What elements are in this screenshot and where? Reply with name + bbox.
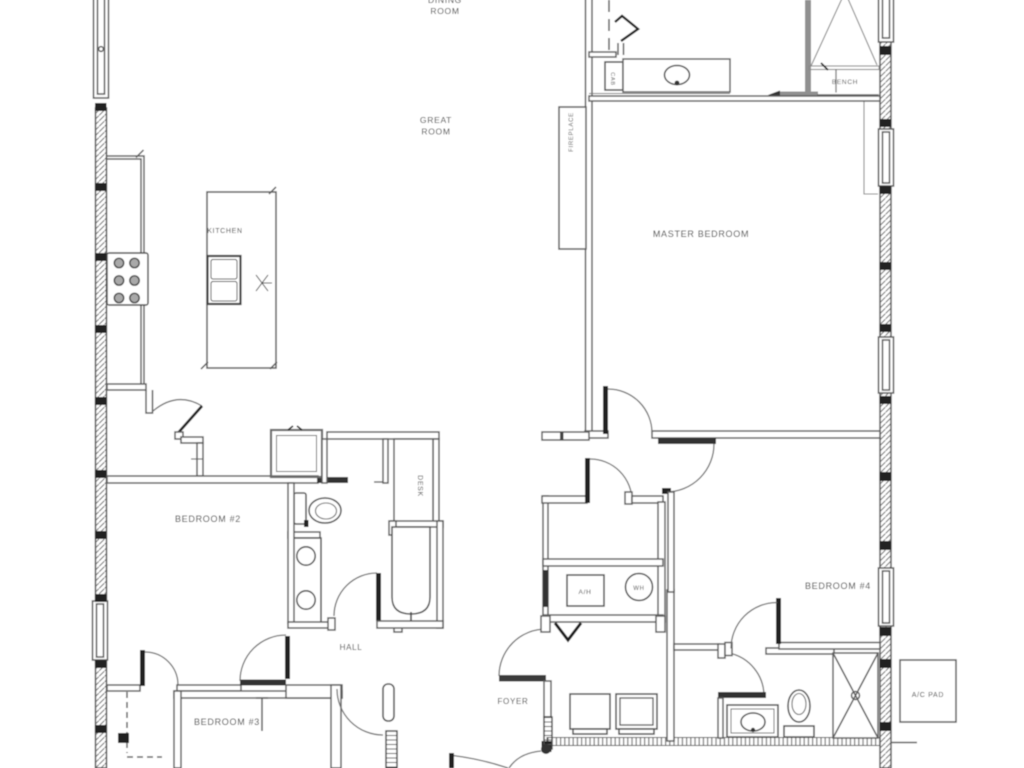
svg-text:ROOM: ROOM	[421, 127, 450, 137]
svg-text:BEDROOM #4: BEDROOM #4	[805, 581, 871, 591]
svg-text:ROOM: ROOM	[430, 6, 459, 16]
svg-text:GREAT: GREAT	[420, 115, 452, 125]
svg-text:DESK: DESK	[416, 475, 423, 497]
svg-text:WH: WH	[633, 586, 644, 592]
svg-text:FOYER: FOYER	[497, 697, 528, 706]
svg-text:A/C PAD: A/C PAD	[912, 692, 944, 699]
svg-text:MASTER BEDROOM: MASTER BEDROOM	[653, 229, 749, 239]
svg-text:FIREPLACE: FIREPLACE	[569, 112, 575, 152]
svg-text:DINING: DINING	[428, 0, 462, 5]
svg-text:A/H: A/H	[579, 589, 592, 596]
svg-text:BEDROOM #2: BEDROOM #2	[175, 514, 241, 524]
svg-text:HALL: HALL	[340, 643, 363, 652]
svg-text:CAB: CAB	[609, 72, 615, 85]
svg-text:BEDROOM #3: BEDROOM #3	[194, 717, 260, 727]
svg-text:KITCHEN: KITCHEN	[207, 228, 243, 235]
